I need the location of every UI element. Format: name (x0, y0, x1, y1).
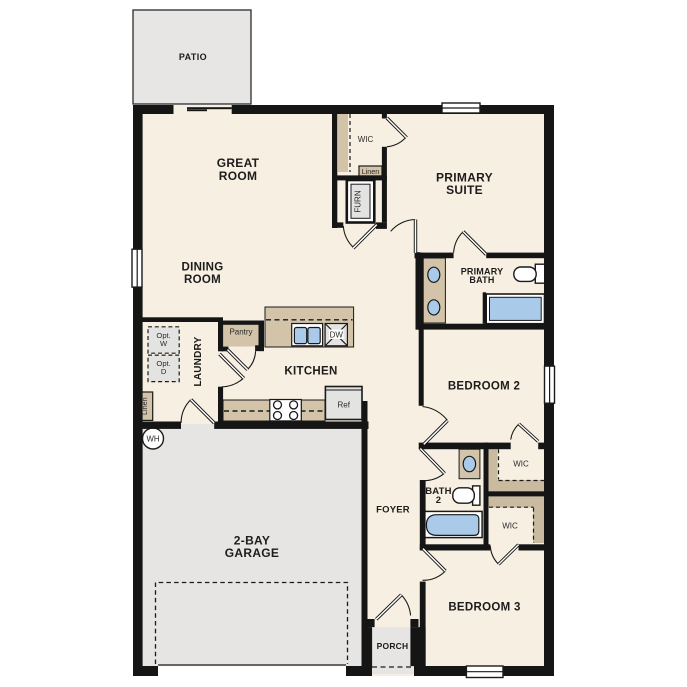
svg-text:PORCH: PORCH (377, 641, 409, 651)
svg-text:D: D (161, 367, 167, 376)
svg-text:LAUNDRY: LAUNDRY (193, 336, 204, 386)
svg-text:2: 2 (436, 495, 441, 506)
svg-text:ROOM: ROOM (219, 169, 258, 183)
svg-text:BATH: BATH (469, 275, 494, 285)
svg-text:ROOM: ROOM (184, 274, 221, 286)
svg-text:PATIO: PATIO (179, 52, 207, 62)
svg-text:FOYER: FOYER (376, 505, 410, 516)
svg-text:FURN: FURN (354, 190, 363, 212)
svg-text:KITCHEN: KITCHEN (284, 366, 337, 378)
svg-text:DINING: DINING (181, 262, 223, 274)
svg-text:GARAGE: GARAGE (225, 546, 279, 560)
svg-text:Linen: Linen (362, 167, 380, 176)
svg-text:Pantry: Pantry (229, 328, 252, 337)
svg-text:WIC: WIC (358, 135, 374, 144)
svg-text:BEDROOM 2: BEDROOM 2 (448, 381, 520, 393)
svg-text:SUITE: SUITE (446, 183, 483, 197)
svg-text:W: W (160, 339, 168, 348)
svg-text:WIC: WIC (513, 460, 529, 469)
svg-text:GREAT: GREAT (217, 156, 260, 170)
svg-text:BEDROOM 3: BEDROOM 3 (448, 602, 520, 614)
svg-text:DW: DW (330, 331, 344, 340)
svg-text:WH: WH (147, 435, 160, 444)
svg-text:Ref: Ref (337, 401, 350, 410)
svg-text:WIC: WIC (502, 522, 518, 531)
